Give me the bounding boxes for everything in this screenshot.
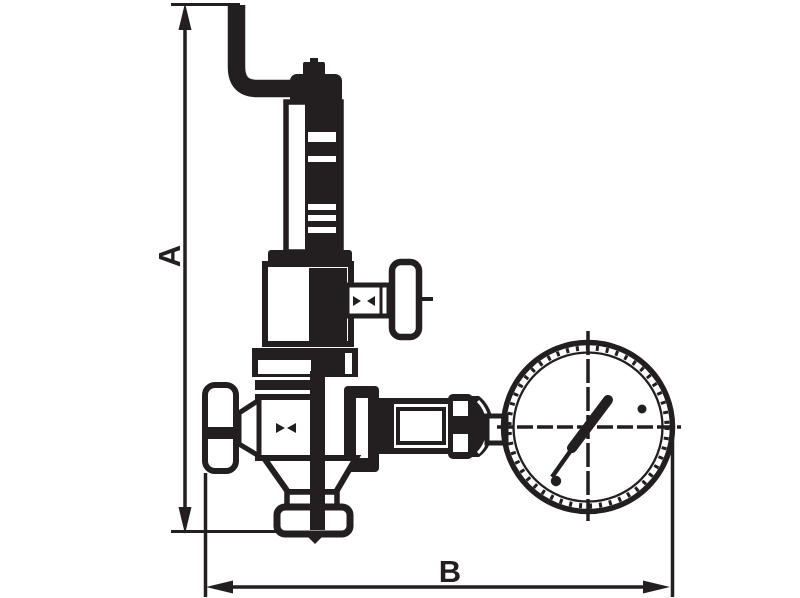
outlet-t-handle bbox=[392, 262, 419, 337]
valve-drawing-svg: A B bbox=[0, 0, 800, 598]
pressure-gauge bbox=[497, 331, 681, 521]
valve-body-upper bbox=[252, 348, 358, 390]
bonnet-cap bbox=[290, 58, 342, 105]
inlet-stem-cone bbox=[239, 400, 259, 456]
dim-b-arrow-right bbox=[643, 581, 670, 594]
gauge-nipple bbox=[377, 401, 451, 451]
inlet-handle-hub bbox=[207, 427, 234, 439]
gauge-needle bbox=[551, 400, 608, 486]
gauge-union-nut bbox=[448, 394, 473, 459]
gauge-pin bbox=[638, 405, 647, 414]
spring-chamber-section bbox=[309, 268, 347, 341]
outlet-tab bbox=[305, 534, 325, 544]
dim-a-arrow-up bbox=[179, 3, 192, 30]
dim-a-label: A bbox=[152, 245, 187, 267]
needle-counterweight bbox=[551, 476, 561, 486]
dim-a-arrow-down bbox=[179, 507, 192, 534]
technical-drawing: A B bbox=[0, 0, 800, 598]
relief-discharge-pipe bbox=[237, 5, 295, 89]
valve-body bbox=[258, 397, 315, 458]
dim-b-label: B bbox=[439, 554, 461, 589]
outlet-stem bbox=[347, 285, 393, 316]
dim-b-arrow-left bbox=[206, 581, 233, 594]
valve-body-shell bbox=[258, 397, 315, 458]
spring-chamber bbox=[265, 264, 351, 344]
internal-pipe bbox=[310, 371, 325, 530]
inlet-handwheel bbox=[205, 385, 236, 471]
spring-bonnet-tube bbox=[286, 102, 341, 252]
